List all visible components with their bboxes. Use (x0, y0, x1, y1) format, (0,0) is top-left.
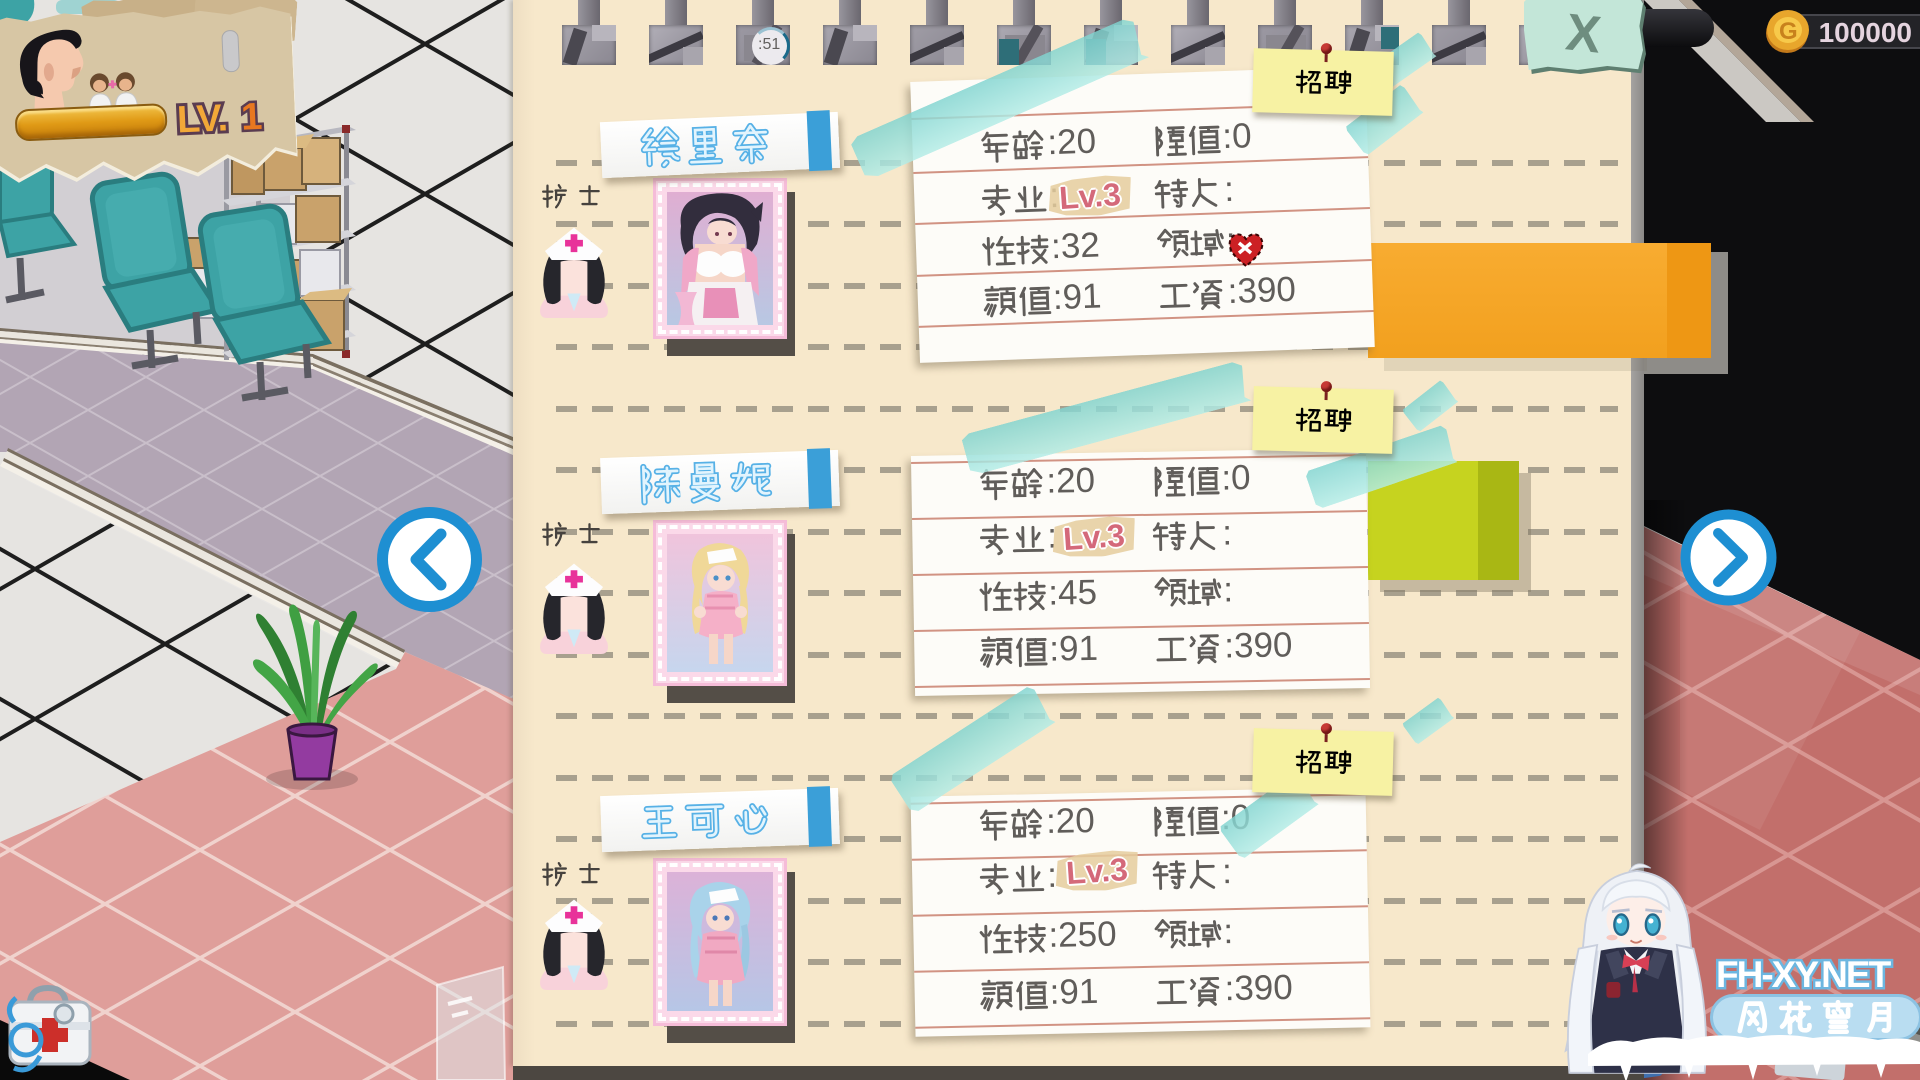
svg-text:LV.: LV. (176, 97, 228, 141)
svg-text:G: G (1779, 18, 1798, 45)
svg-text:1: 1 (240, 96, 263, 139)
svg-text:FH-XY.NET: FH-XY.NET (1716, 954, 1892, 995)
